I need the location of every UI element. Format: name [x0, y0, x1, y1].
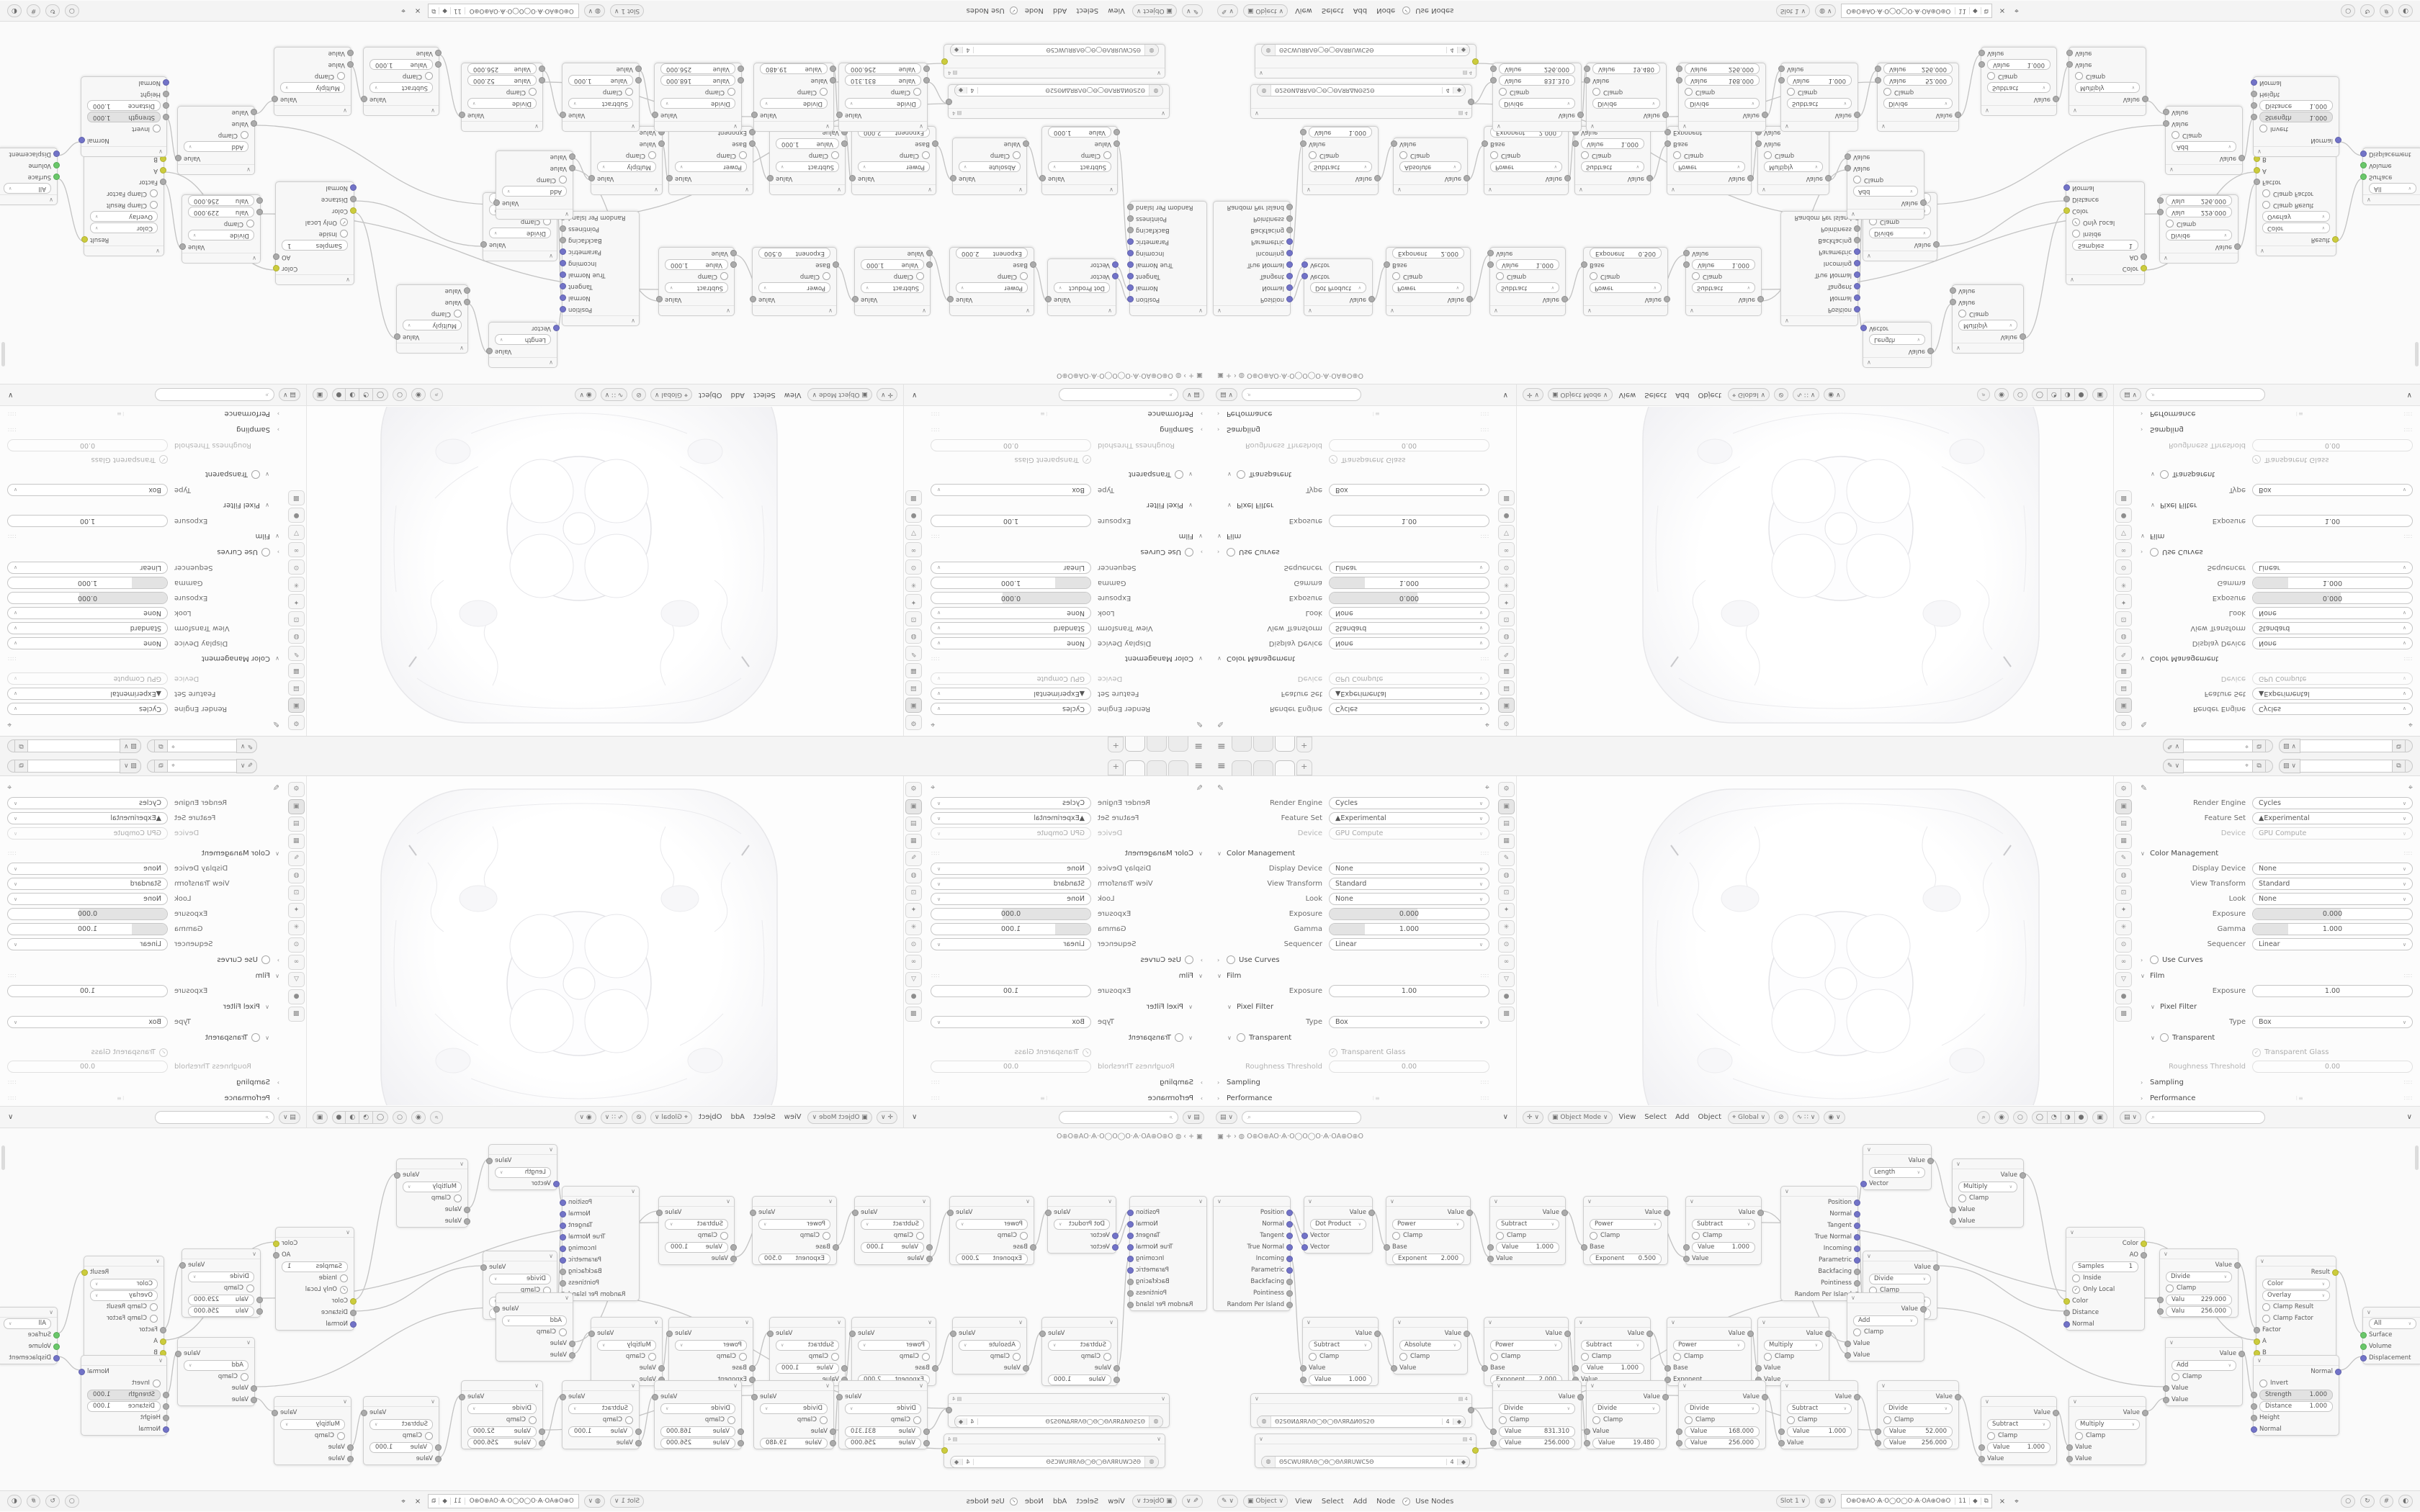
properties-tab-icon[interactable]: ▩: [2115, 490, 2132, 505]
node-checkbox[interactable]: ✓Only Local: [2072, 219, 2115, 227]
section-caret-icon[interactable]: ›: [2141, 549, 2146, 556]
search-input[interactable]: ⌕: [2146, 389, 2265, 402]
checkbox-circle[interactable]: ✓: [2072, 1286, 2080, 1294]
socket-output[interactable]: [852, 1210, 859, 1216]
node-card-math-subtract-2[interactable]: ∨ValueSubtract∨ClampValue1.000Value: [1685, 247, 1762, 316]
checkbox[interactable]: ✓: [1083, 1048, 1091, 1057]
socket-input[interactable]: [1487, 251, 1494, 257]
node-header[interactable]: ∨: [852, 1318, 936, 1328]
checkbox-circle[interactable]: [2262, 202, 2270, 210]
node-operation-dropdown[interactable]: Power∨: [1490, 1340, 1562, 1351]
node-operation-dropdown[interactable]: Absolute∨: [1399, 1340, 1461, 1351]
section-checkbox[interactable]: [2150, 955, 2159, 964]
socket-output[interactable]: [79, 138, 85, 144]
properties-tab-icon[interactable]: ▣: [2115, 698, 2132, 713]
node-card-math-divide-2[interactable]: ∨ValueDivide∨ClampValu229.000Valu256.000: [2159, 194, 2238, 264]
socket-output[interactable]: [560, 261, 566, 267]
node-operation-dropdown[interactable]: Divide∨: [188, 1272, 254, 1282]
menu-view[interactable]: View: [782, 1113, 804, 1121]
id-selector-field[interactable]: ⌖: [2184, 740, 2253, 753]
collapse-chevron-icon[interactable]: ∨: [1785, 123, 1789, 130]
socket-input[interactable]: [1860, 325, 1867, 332]
socket-output[interactable]: [1045, 297, 1052, 303]
node-card-group-node-2[interactable]: ∨▤ 4◍Θ5CWUЯRΛΘ◯Θ◯ΘΛЯRUWC5Θ4◆: [944, 44, 1165, 78]
node-checkbox[interactable]: Clamp: [315, 1432, 345, 1440]
workspace-tab[interactable]: [1147, 760, 1167, 775]
collapse-chevron-icon[interactable]: ∨: [1397, 1319, 1402, 1326]
socket-input[interactable]: [2066, 50, 2073, 57]
node-card-vector-math-dot[interactable]: ∨ValueDot Product∨VectorVector: [1047, 1196, 1116, 1254]
socket-output[interactable]: [1757, 1210, 1764, 1216]
socket-output[interactable]: [836, 1394, 843, 1400]
socket-output[interactable]: [1472, 1447, 1479, 1454]
properties-tab-icon[interactable]: ●: [1498, 989, 1515, 1004]
checkbox-circle[interactable]: [2262, 1315, 2270, 1323]
checkbox-circle[interactable]: [1496, 273, 1504, 281]
node-operation-dropdown[interactable]: Overlay∨: [90, 212, 158, 222]
node-header[interactable]: ∨: [1303, 1318, 1378, 1328]
socket-output[interactable]: [560, 284, 566, 290]
prop-dropdown[interactable]: None∨: [7, 607, 168, 619]
socket-input[interactable]: [1384, 1244, 1390, 1251]
socket-input[interactable]: [569, 1352, 575, 1359]
node-card-math-power-2[interactable]: ∨ValuePower∨ClampBaseExponent0.500: [1583, 1196, 1668, 1265]
workspace-tab[interactable]: [1275, 760, 1295, 775]
prop-dropdown[interactable]: None∨: [2252, 863, 2413, 875]
collapse-chevron-icon[interactable]: ∨: [346, 1229, 350, 1236]
socket-input[interactable]: [830, 1428, 836, 1435]
node-operation-dropdown[interactable]: Add∨: [1853, 1315, 1918, 1326]
shading-mode-0[interactable]: ◯: [2032, 1111, 2048, 1124]
use-nodes-checkbox[interactable]: ✓Use Nodes: [964, 1498, 1018, 1506]
viewport-header-icon-0[interactable]: ⌕: [430, 1111, 443, 1124]
socket-output[interactable]: [1854, 1246, 1860, 1252]
properties-tab-icon[interactable]: ✳: [905, 920, 922, 935]
socket-output[interactable]: [588, 176, 595, 182]
use-nodes-checkbox[interactable]: ✓Use Nodes: [964, 7, 1018, 15]
properties-tab-icon[interactable]: ▽: [905, 972, 922, 987]
collapse-chevron-icon[interactable]: ∨: [460, 345, 464, 351]
shading-mode-2[interactable]: ◑: [2061, 1111, 2075, 1124]
node-checkbox[interactable]: Invert: [132, 1380, 161, 1387]
shield-icon[interactable]: ◆: [439, 7, 451, 14]
properties-tab-icon[interactable]: ▦: [2115, 663, 2132, 678]
socket-output[interactable]: [272, 96, 278, 103]
id-selector-field[interactable]: ⌖: [2184, 760, 2253, 773]
search-input[interactable]: ⌕: [2146, 1111, 2265, 1124]
node-header[interactable]: ∨: [950, 1197, 1034, 1207]
shader-node-editor[interactable]: ▣ + › ◍ O⊕O⊕AO·Ѧ·O◯O◯O·Ѧ·OA⊕O⊕O ∨Positio…: [1210, 1128, 2420, 1490]
node-operation-dropdown[interactable]: Overlay∨: [2262, 212, 2330, 222]
shield-icon[interactable]: ◆: [1457, 1459, 1469, 1465]
checkbox-circle[interactable]: ✓: [340, 219, 348, 227]
socket-input[interactable]: [1875, 1440, 1881, 1446]
checkbox-circle[interactable]: [425, 1432, 433, 1440]
socket-input[interactable]: [2163, 1385, 2169, 1392]
socket-output[interactable]: [1127, 274, 1134, 280]
socket-input[interactable]: [1301, 1233, 1308, 1239]
node-checkbox[interactable]: Clamp: [800, 1232, 830, 1240]
node-operation-dropdown[interactable]: Divide∨: [1592, 1403, 1660, 1414]
properties-tab-icon[interactable]: ✎: [1498, 646, 1515, 661]
socket-input[interactable]: [2360, 151, 2367, 158]
socket-output[interactable]: [560, 1246, 566, 1252]
socket-input[interactable]: [833, 1244, 839, 1251]
socket-output[interactable]: [1127, 239, 1134, 246]
collapse-chevron-icon[interactable]: ∨: [2073, 107, 2077, 114]
node-checkbox[interactable]: Clamp: [1958, 1194, 1989, 1202]
node-card-math-add-1[interactable]: ∨ValueAdd∨ClampValueValue: [1847, 150, 1924, 220]
menu-object[interactable]: Object: [1695, 1113, 1724, 1121]
node-checkbox[interactable]: Clamp: [626, 1353, 656, 1361]
socket-output[interactable]: [480, 1264, 487, 1271]
node-operation-dropdown[interactable]: Absolute∨: [1399, 162, 1461, 173]
node-value-field[interactable]: Value1.000: [568, 1426, 633, 1437]
checkbox-circle[interactable]: [1499, 89, 1507, 96]
node-card-ambient-occlusion[interactable]: ∨ColorAOSamples1Inside✓Only LocalColorDi…: [2066, 181, 2145, 285]
node-value-field[interactable]: Value256.000: [1883, 64, 1953, 75]
shader-node-editor[interactable]: ▣ + › ◍ O⊕O⊕AO·Ѧ·O◯O◯O·Ѧ·OA⊕O⊕O ∨Positio…: [0, 1128, 1210, 1490]
section-caret-icon[interactable]: ›: [2141, 1079, 2146, 1086]
socket-output[interactable]: [560, 1223, 566, 1229]
node-card-math-subtract-6[interactable]: ∨ValueSubtract∨ClampValue1.000Value: [1981, 1396, 2057, 1465]
collapse-chevron-icon[interactable]: ∨: [156, 1258, 160, 1264]
collapse-chevron-icon[interactable]: ∨: [2367, 197, 2371, 203]
node-header[interactable]: ∨: [1042, 184, 1117, 194]
node-operation-dropdown[interactable]: All∨: [2369, 184, 2416, 194]
collapse-chevron-icon[interactable]: ∨: [252, 1251, 256, 1257]
menu-add[interactable]: Add: [729, 391, 747, 399]
node-checkbox[interactable]: Clamp: [1399, 152, 1430, 160]
node-value-field[interactable]: Valu229.000: [2166, 207, 2232, 218]
section-caret-icon[interactable]: ›: [1217, 1095, 1223, 1102]
search-input[interactable]: ⌕: [1059, 389, 1178, 402]
node-operation-dropdown[interactable]: Dot Product∨: [1310, 283, 1366, 294]
prop-dropdown[interactable]: Box∨: [931, 1016, 1091, 1028]
node-operation-dropdown[interactable]: Divide∨: [467, 1403, 537, 1414]
collapse-chevron-icon[interactable]: ∨: [2367, 1309, 2371, 1315]
node-header[interactable]: ∨: [1981, 1397, 2056, 1407]
socket-output[interactable]: [1286, 1290, 1293, 1297]
node-header[interactable]: ∨: [2160, 1249, 2238, 1259]
node-value-field[interactable]: Value1.000: [1787, 76, 1852, 86]
socket-output[interactable]: [767, 176, 774, 182]
node-value-field[interactable]: Value256.000: [1685, 64, 1760, 75]
shading-mode-1[interactable]: ◔: [2048, 1111, 2061, 1124]
socket-input[interactable]: [2163, 109, 2169, 116]
pin-icon[interactable]: ⌖: [2408, 783, 2413, 793]
node-checkbox[interactable]: Clamp: [1309, 1353, 1339, 1361]
node-value-field[interactable]: Value1.000: [1048, 1374, 1111, 1385]
properties-tab-icon[interactable]: ▽: [2115, 525, 2132, 540]
node-checkbox[interactable]: Clamp: [1853, 176, 1883, 184]
collapse-chevron-icon[interactable]: ∨: [1785, 1188, 1789, 1194]
checkbox-circle[interactable]: [1987, 1432, 1995, 1440]
properties-tab-icon[interactable]: ⚙: [905, 715, 922, 730]
checkbox-circle[interactable]: [1692, 273, 1700, 281]
slot-dropdown[interactable]: Slot 1 ∨: [1776, 4, 1810, 17]
socket-output[interactable]: [1854, 1211, 1860, 1218]
node-operation-dropdown[interactable]: Subtract∨: [1048, 1340, 1111, 1351]
prop-dropdown[interactable]: None∨: [7, 637, 168, 649]
properties-tab-icon[interactable]: ▦: [1498, 834, 1515, 849]
node-value-field[interactable]: Value256.000: [1499, 1438, 1575, 1449]
node-card-math-divide-4[interactable]: ∨ValueDivide∨ClampValueValue19.480: [1586, 1380, 1667, 1449]
object-dropdown[interactable]: ▣ Object ∨: [1132, 4, 1177, 17]
checkbox[interactable]: ✓: [2252, 1048, 2261, 1057]
node-value-field[interactable]: Value256.000: [845, 64, 921, 75]
prop-field[interactable]: 1.000: [1329, 577, 1489, 589]
node-header[interactable]: ∨: [1953, 1159, 2023, 1169]
node-value-field[interactable]: Distance1.000: [2259, 1401, 2333, 1412]
prop-dropdown[interactable]: Linear∨: [1329, 562, 1489, 574]
snap-button[interactable]: ∿ ∷ ∨: [601, 1111, 628, 1124]
orientation-dropdown[interactable]: ⌖ Global ∨: [1728, 1111, 1770, 1124]
node-operation-dropdown[interactable]: Subtract∨: [861, 1219, 924, 1230]
collapse-chevron-icon[interactable]: ∨: [1198, 1198, 1203, 1205]
collapse-chevron-icon[interactable]: ∨: [928, 1319, 932, 1326]
properties-tab-icon[interactable]: ⊡: [905, 886, 922, 901]
socket-input[interactable]: [1482, 141, 1488, 148]
shield-icon[interactable]: ◆: [955, 1418, 967, 1425]
collapse-chevron-icon[interactable]: ∨: [837, 186, 841, 193]
node-operation-dropdown[interactable]: Multiply∨: [597, 162, 656, 173]
node-header[interactable]: ∨: [669, 184, 753, 194]
checkbox-circle[interactable]: [2075, 73, 2083, 81]
socket-input[interactable]: [1384, 262, 1390, 269]
node-header[interactable]: ∨: [0, 194, 57, 204]
copy-icon[interactable]: ⧉: [154, 740, 167, 753]
collapse-chevron-icon[interactable]: ∨: [1671, 1319, 1675, 1326]
pin-icon[interactable]: ⌖: [2012, 7, 2021, 15]
section-header[interactable]: ›Performance⁝≡∷∷: [2141, 406, 2413, 422]
slot-dropdown[interactable]: Slot 1 ∨: [610, 4, 644, 17]
checkbox-circle[interactable]: [831, 152, 839, 160]
checkbox-circle[interactable]: [1590, 273, 1597, 281]
prop-dropdown[interactable]: Standard∨: [931, 878, 1091, 890]
section-caret-icon[interactable]: ›: [274, 411, 279, 418]
section-header[interactable]: ∨Transparent: [1217, 1030, 1489, 1045]
properties-tab-icon[interactable]: ⊙: [2115, 559, 2132, 575]
node-operation-dropdown[interactable]: Color∨: [90, 223, 158, 234]
collapse-chevron-icon[interactable]: ∨: [1867, 1253, 1871, 1259]
node-operation-dropdown[interactable]: Divide∨: [1869, 228, 1931, 239]
checkbox-circle[interactable]: [529, 1416, 537, 1424]
section-header[interactable]: ›Sampling∷∷: [2141, 422, 2413, 438]
checkbox-circle[interactable]: [559, 1328, 567, 1336]
socket-output[interactable]: [750, 297, 756, 303]
section-caret-icon[interactable]: ∨: [264, 1035, 269, 1041]
viewport-3d[interactable]: [1516, 776, 2114, 1106]
node-operation-dropdown[interactable]: Multiply∨: [1958, 1182, 2017, 1192]
properties-tab-icon[interactable]: ✳: [905, 577, 922, 592]
properties-tab-icon[interactable]: ✎: [2115, 646, 2132, 661]
collapse-chevron-icon[interactable]: ∨: [158, 1357, 163, 1364]
slot-dropdown[interactable]: Slot 1 ∨: [1776, 1495, 1810, 1508]
node-card-math-power-1[interactable]: ∨ValuePower∨ClampBaseExponent2.000: [949, 247, 1034, 316]
node-id-field[interactable]: ◍Θ2SΘИΔЯRΛΘ◯Θ◯ΘΛЯRΔИΘS2Θ4◆: [954, 1416, 1163, 1428]
filter-chevron-icon[interactable]: ∨: [2405, 1113, 2414, 1121]
properties-tab-icon[interactable]: ✦: [2115, 594, 2132, 609]
checkbox-circle[interactable]: [1309, 152, 1317, 160]
pin-icon[interactable]: ⌖: [399, 7, 408, 15]
collapse-chevron-icon[interactable]: ∨: [49, 1309, 53, 1315]
socket-input[interactable]: [1676, 78, 1682, 84]
socket-input[interactable]: [2251, 80, 2257, 86]
node-id-field[interactable]: ◍Θ2SΘИΔЯRΛΘ◯Θ◯ΘΛЯRΔИΘS2Θ4◆: [1257, 85, 1466, 97]
socket-input[interactable]: [2157, 1297, 2164, 1303]
checkbox-circle[interactable]: [1496, 1232, 1504, 1240]
node-value-field[interactable]: Exponent2.000: [956, 248, 1028, 259]
checkbox-circle[interactable]: [150, 202, 158, 210]
socket-output[interactable]: [560, 1257, 566, 1264]
node-value-field[interactable]: Valu229.000: [188, 1295, 254, 1305]
checkbox-circle[interactable]: [153, 125, 161, 133]
node-card-math-power-2[interactable]: ∨ValuePower∨ClampBaseExponent0.500: [752, 247, 837, 316]
socket-output[interactable]: [560, 249, 566, 256]
collapse-chevron-icon[interactable]: ∨: [2257, 148, 2262, 155]
node-header[interactable]: ∨: [2254, 146, 2339, 156]
node-header[interactable]: ∨: [839, 1381, 927, 1391]
node-value-field[interactable]: Strength1.000: [87, 1390, 161, 1400]
shield-icon[interactable]: ◆: [1453, 1418, 1465, 1425]
node-checkbox[interactable]: Clamp: [891, 1416, 921, 1424]
node-value-field[interactable]: Value1.000: [1309, 1374, 1372, 1385]
socket-input[interactable]: [569, 1341, 575, 1347]
socket-input[interactable]: [251, 1385, 257, 1392]
socket-input[interactable]: [830, 1440, 836, 1446]
node-card-math-power-2[interactable]: ∨ValuePower∨ClampBaseExponent0.500: [752, 1196, 837, 1265]
collapse-chevron-icon[interactable]: ∨: [2260, 1258, 2264, 1264]
prop-field[interactable]: 1.00: [7, 515, 168, 527]
collapse-chevron-icon[interactable]: ∨: [1255, 110, 1259, 117]
menu-node[interactable]: Node: [1023, 1498, 1046, 1506]
collapse-chevron-icon[interactable]: ∨: [828, 1198, 833, 1205]
node-header[interactable]: ∨: [563, 121, 639, 131]
socket-input[interactable]: [1875, 1428, 1881, 1435]
section-caret-icon[interactable]: ›: [1197, 411, 1203, 418]
close-icon[interactable]: ×: [1997, 1498, 2007, 1506]
socket-output[interactable]: [1127, 1267, 1134, 1274]
node-id-field[interactable]: ◍Θ2SΘИΔЯRΛΘ◯Θ◯ΘΛЯRΔИΘS2Θ4◆: [954, 85, 1163, 97]
node-card-material-output[interactable]: ∨All∨SurfaceVolumeDisplacement: [0, 148, 58, 205]
node-card-math-power-4[interactable]: ∨ValuePower∨ClampBaseExponent: [668, 126, 753, 195]
mode-dropdown[interactable]: ▣ Object Mode ∨: [1548, 1111, 1613, 1124]
collapse-chevron-icon[interactable]: ∨: [1307, 186, 1311, 193]
section-caret-icon[interactable]: ›: [2141, 1095, 2146, 1102]
proportional-edit-button[interactable]: ◉ ∨: [1824, 1111, 1845, 1124]
properties-tab-icon[interactable]: ◍: [288, 629, 305, 644]
node-card-math-divide-5[interactable]: ∨ValueDivide∨ClampValue168.000Value256.0…: [654, 1380, 742, 1449]
node-header[interactable]: ∨: [1863, 357, 1931, 367]
collapse-chevron-icon[interactable]: ∨: [1026, 307, 1030, 314]
prop-dropdown[interactable]: None∨: [1329, 607, 1489, 619]
hamburger-menu-icon[interactable]: ≡: [1217, 741, 1226, 752]
node-header[interactable]: ∨: [1490, 305, 1565, 315]
snap-button[interactable]: ∿ ∷ ∨: [601, 389, 628, 402]
node-card-group-node-1[interactable]: ∨▤ 4◍Θ2SΘИΔЯRΛΘ◯Θ◯ΘΛЯRΔИΘS2Θ4◆: [1250, 84, 1472, 119]
section-header[interactable]: ›Sampling∷∷: [7, 1074, 279, 1090]
menu-object[interactable]: Object: [696, 1113, 725, 1121]
socket-output[interactable]: [179, 244, 186, 251]
id-selector-icon[interactable]: ▨ ∨: [120, 739, 141, 754]
socket-output[interactable]: [560, 238, 566, 244]
section-header[interactable]: ›Sampling∷∷: [7, 422, 279, 438]
node-operation-dropdown[interactable]: Subtract∨: [369, 1419, 433, 1430]
material-icon-dropdown[interactable]: ◍ ∨: [584, 1495, 605, 1508]
node-card-math-divide-2[interactable]: ∨ValueDivide∨ClampValu229.000Valu256.000: [2159, 1248, 2238, 1318]
node-checkbox[interactable]: Clamp: [900, 152, 930, 160]
section-checkbox[interactable]: [2160, 1033, 2169, 1042]
node-header[interactable]: ∨: [2069, 105, 2146, 115]
viewport-3d[interactable]: [1516, 406, 2114, 736]
section-header[interactable]: ∨Film∷∷: [931, 968, 1203, 984]
collapse-chevron-icon[interactable]: ∨: [1217, 307, 1222, 314]
node-card-vector-math-dot[interactable]: ∨ValueDot Product∨VectorVector: [1304, 1196, 1373, 1254]
node-header[interactable]: ∨▤ 4: [1255, 1434, 1476, 1444]
socket-input[interactable]: [1683, 1244, 1690, 1251]
node-card-math-power-4[interactable]: ∨ValuePower∨ClampBaseExponent: [1667, 1317, 1752, 1386]
socket-input[interactable]: [1683, 251, 1690, 257]
properties-tab-icon[interactable]: ▦: [2115, 834, 2132, 849]
node-checkbox[interactable]: Clamp: [1853, 1328, 1883, 1336]
checkbox-circle[interactable]: [1673, 1353, 1681, 1361]
properties-tab-icon[interactable]: ∞: [288, 955, 305, 970]
node-operation-dropdown[interactable]: Divide∨: [1869, 1274, 1931, 1284]
socket-output[interactable]: [273, 1241, 279, 1247]
socket-input[interactable]: [1023, 1365, 1029, 1372]
node-header[interactable]: ∨: [462, 1381, 542, 1391]
node-card-math-subtract-5[interactable]: ∨ValueSubtract∨ClampValue1.000Value: [1780, 1380, 1858, 1449]
prop-dropdown[interactable]: Cycles∨: [1329, 703, 1489, 715]
socket-input[interactable]: [163, 1426, 169, 1433]
node-value-field[interactable]: Value168.000: [660, 76, 735, 86]
node-operation-dropdown[interactable]: Add∨: [2172, 1360, 2236, 1371]
properties-tab-icon[interactable]: ●: [2115, 989, 2132, 1004]
socket-output[interactable]: [486, 1158, 493, 1164]
node-operation-dropdown[interactable]: Add∨: [502, 1315, 567, 1326]
node-operation-dropdown[interactable]: Divide∨: [760, 99, 828, 109]
collapse-chevron-icon[interactable]: ∨: [745, 1319, 749, 1326]
socket-output[interactable]: [2335, 1369, 2341, 1375]
copy-icon[interactable]: ⧉: [429, 7, 439, 14]
collapse-chevron-icon[interactable]: ∨: [343, 1398, 347, 1405]
node-value-field[interactable]: Value1.000: [1692, 260, 1755, 271]
filter-chevron-icon[interactable]: ∨: [2405, 391, 2414, 399]
prop-dropdown[interactable]: None∨: [1329, 863, 1489, 875]
node-header[interactable]: ∨: [274, 1397, 351, 1407]
node-editor-scrollbar[interactable]: [2415, 342, 2419, 366]
search-input[interactable]: ⌕: [155, 1111, 274, 1124]
socket-input[interactable]: [2063, 1310, 2070, 1316]
checkbox-circle[interactable]: [916, 273, 924, 281]
properties-tab-icon[interactable]: ⊡: [288, 611, 305, 626]
node-header[interactable]: ∨: [1587, 121, 1666, 131]
node-id-field[interactable]: ◍Θ5CWUЯRΛΘ◯Θ◯ΘΛЯRUWC5Θ4◆: [1261, 45, 1470, 57]
node-header[interactable]: ∨: [855, 305, 930, 315]
material-id-block[interactable]: O⊕O⊕AO·Ѧ·O◯O◯O·Ѧ·OA⊕O⊕O11◆⧉: [428, 4, 578, 18]
properties-tab-icon[interactable]: ▩: [288, 1007, 305, 1022]
socket-input[interactable]: [658, 1365, 665, 1372]
node-value-field[interactable]: Value1.000: [1987, 60, 2051, 71]
prop-dropdown[interactable]: Box∨: [1329, 1016, 1489, 1028]
node-value-field[interactable]: Value52.000: [467, 1426, 537, 1437]
prop-field[interactable]: 1.00: [2252, 515, 2413, 527]
socket-input[interactable]: [2251, 1392, 2257, 1398]
section-header[interactable]: ›Use Curves: [7, 952, 279, 968]
socket-output[interactable]: [480, 242, 487, 248]
socket-output[interactable]: [560, 307, 566, 313]
